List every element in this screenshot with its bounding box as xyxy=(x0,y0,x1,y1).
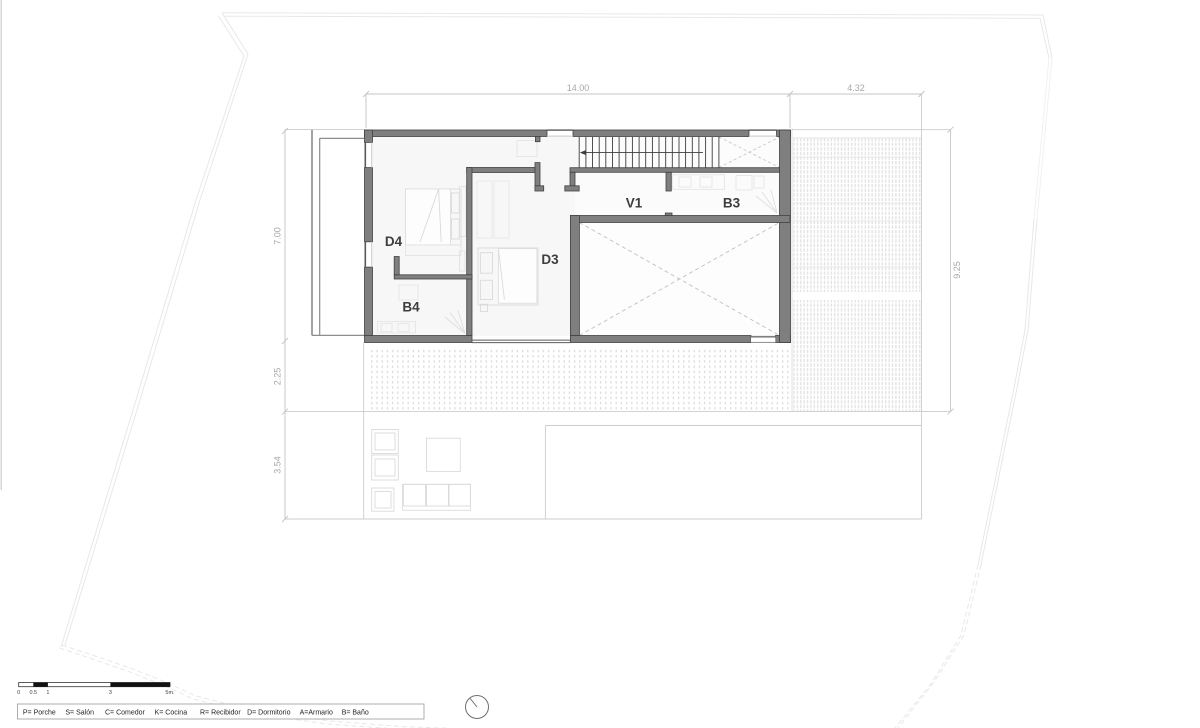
svg-text:4.32: 4.32 xyxy=(847,83,865,93)
svg-text:0.5: 0.5 xyxy=(29,690,37,696)
svg-text:D= Dormitorio: D= Dormitorio xyxy=(247,710,290,717)
svg-text:K= Cocina: K= Cocina xyxy=(155,710,188,717)
svg-text:P= Porche: P= Porche xyxy=(23,710,56,717)
svg-text:2.25: 2.25 xyxy=(273,368,283,386)
svg-text:S= Salón: S= Salón xyxy=(65,710,94,717)
svg-text:0: 0 xyxy=(17,690,20,696)
svg-text:9.25: 9.25 xyxy=(952,261,962,279)
svg-text:D3: D3 xyxy=(541,252,559,267)
svg-text:B4: B4 xyxy=(402,300,420,315)
svg-text:B= Baño: B= Baño xyxy=(342,710,369,717)
svg-text:V1: V1 xyxy=(626,196,643,211)
svg-text:R= Recibidor: R= Recibidor xyxy=(200,710,241,717)
svg-text:3: 3 xyxy=(109,690,112,696)
svg-text:B3: B3 xyxy=(723,196,741,211)
svg-text:A=Armario: A=Armario xyxy=(300,710,333,717)
svg-text:14.00: 14.00 xyxy=(567,83,590,93)
svg-text:D4: D4 xyxy=(385,234,403,249)
svg-text:C= Comedor: C= Comedor xyxy=(105,710,146,717)
svg-text:7.00: 7.00 xyxy=(273,227,283,245)
svg-text:1: 1 xyxy=(46,690,49,696)
svg-text:5m.: 5m. xyxy=(165,690,175,696)
svg-text:3.54: 3.54 xyxy=(273,456,283,474)
